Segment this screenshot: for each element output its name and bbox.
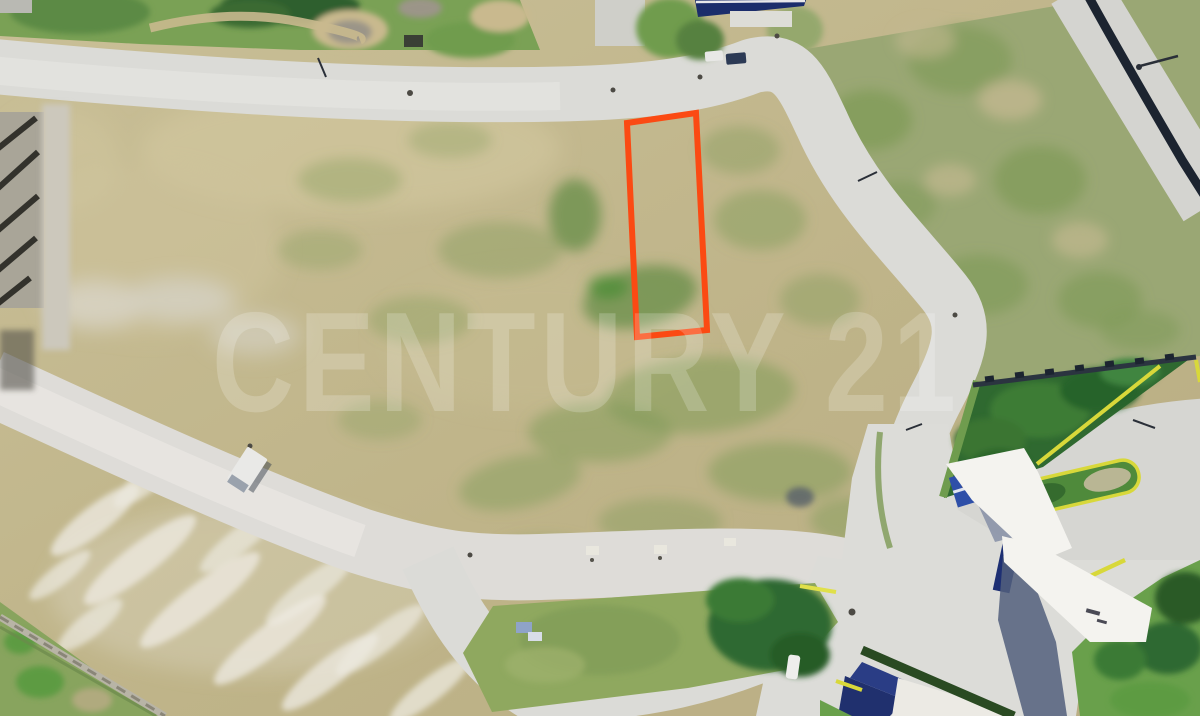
dark-ground-spot <box>786 487 814 507</box>
aerial-photo: CENTURY 21 <box>0 0 1200 716</box>
dark-car-top <box>726 52 747 65</box>
aerial-photo-canvas <box>0 0 1200 716</box>
white-car-top <box>705 50 724 62</box>
